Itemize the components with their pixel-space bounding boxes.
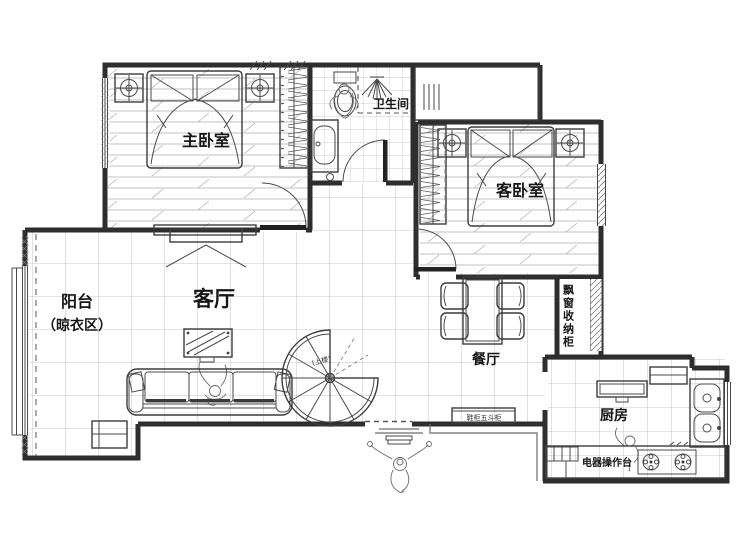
hallway-floor	[310, 183, 413, 232]
porch-outline	[430, 424, 537, 481]
balcony-floor	[27, 423, 138, 457]
balcony-sublabel: （晾衣区）	[42, 317, 112, 334]
upper-bay	[415, 67, 539, 120]
masonry-hatch	[22, 236, 29, 266]
wardrobe	[280, 67, 308, 168]
bay-window-strip	[590, 279, 602, 351]
masonry-hatch	[22, 435, 29, 455]
bay-window-cabinet: 飘窗收纳柜	[560, 279, 590, 352]
bay-window-cabinet-label: 飘窗收纳柜	[562, 284, 576, 349]
entry-canopy	[375, 429, 423, 444]
bathroom-label: 卫生间	[373, 96, 409, 111]
balcony-label: 阳台	[61, 292, 93, 311]
guest-bedroom-label: 客卧室	[496, 181, 544, 200]
floor-plan: 主卧室 卫生间	[0, 0, 740, 555]
master-bedroom-label: 主卧室	[182, 131, 230, 150]
bay-vent-lines	[424, 84, 439, 110]
kitchen-label: 厨房	[600, 407, 628, 424]
master-window	[101, 78, 110, 168]
wardrobe	[420, 125, 446, 224]
kitchen-window	[724, 382, 732, 445]
appliance-counter-label: 电器操作台	[582, 456, 632, 469]
bathroom-floor	[308, 66, 413, 182]
person-figure	[368, 442, 432, 493]
floor-plan-canvas: 主卧室 卫生间	[0, 0, 740, 555]
guest-window	[598, 164, 606, 226]
dining-room-label: 餐厅	[471, 351, 500, 368]
living-room-label: 客厅	[193, 287, 235, 311]
balcony-window	[12, 236, 29, 455]
entry-cabinet-label: 鞋柜五斗柜	[467, 413, 502, 422]
